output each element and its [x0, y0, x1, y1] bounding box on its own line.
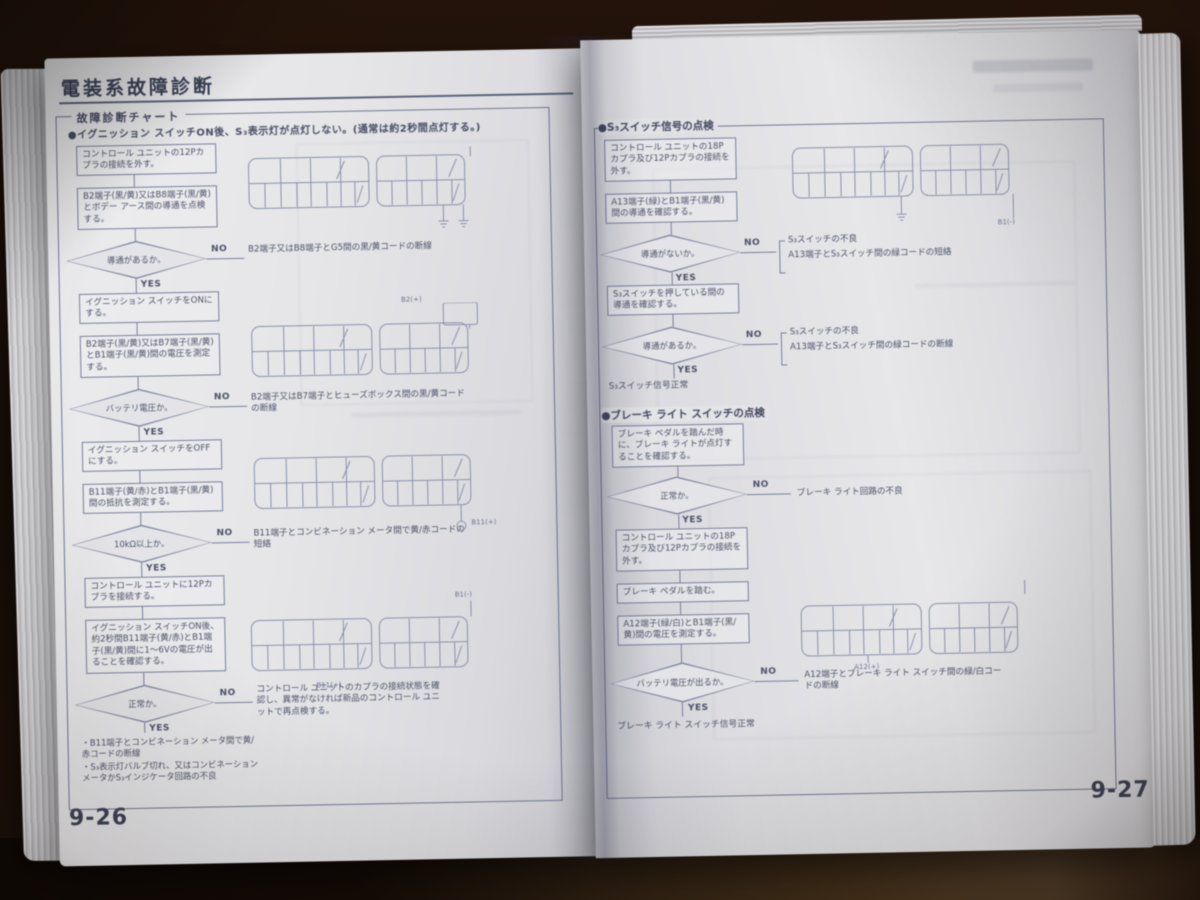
- connector-diagram: [247, 598, 486, 681]
- yes-label: YES: [141, 279, 162, 289]
- yes-label: YES: [149, 723, 170, 733]
- no-label: NO: [211, 244, 227, 254]
- section-title: ●S₃スイッチ信号の点検: [598, 118, 718, 135]
- no-label: NO: [753, 480, 769, 490]
- no-label: NO: [214, 392, 230, 402]
- result-note: ・B11端子とコンビネーション メータ間で黄/赤コードの断線: [81, 735, 261, 760]
- yes-label: YES: [146, 563, 167, 573]
- open-book: 電装系故障診断 故障診断チャート ●イグニッション スイッチON後、S₃表示灯が…: [0, 0, 1200, 900]
- flow-box: A13端子(緑)とB1端子(黒/黄)間の導通を確認する。: [605, 191, 738, 224]
- flow-box: イグニッション スイッチON後、約2秒間B11端子(黄/赤)とB1端子(黒/黄)…: [85, 617, 226, 674]
- no-label: NO: [744, 238, 760, 248]
- flow-box: B11端子(黄/赤)とB1端子(黒/黄)間の抵抗を測定する。: [83, 481, 224, 514]
- flow-box: コントロール ユニットの18Pカプラ及び12Pカプラの接続を外す。: [616, 527, 749, 572]
- no-label: NO: [760, 667, 776, 677]
- flow-box: ブレーキ ペダルを踏む。: [617, 581, 749, 604]
- no-label: NO: [216, 528, 232, 538]
- terminal-label: B11(+): [316, 681, 341, 689]
- left-page: 電装系故障診断 故障診断チャート ●イグニッション スイッチON後、S₃表示灯が…: [44, 48, 595, 866]
- yes-label: YES: [677, 365, 698, 375]
- no-branch-note: B2端子又はB7端子とヒューズボックス間の黒/黄コードの断線: [251, 389, 466, 416]
- bleedthrough-text: [973, 58, 1093, 72]
- flow-box: イグニッション スイッチをOFFにする。: [82, 439, 223, 472]
- page-number-right: 9-27: [1090, 778, 1150, 804]
- flow-box: コントロール ユニットに12Pカプラを接続する。: [84, 575, 225, 608]
- yes-label: YES: [688, 703, 709, 713]
- terminal-label: B11(+): [471, 518, 496, 526]
- photo-of-open-manual: 電装系故障診断 故障診断チャート ●イグニッション スイッチON後、S₃表示灯が…: [0, 0, 1200, 900]
- flow-box: B2端子(黒/黄)又はB7端子(黒/黄)とB1端子(黒/黄)間の電圧を測定する。: [80, 333, 221, 378]
- yes-label: YES: [682, 515, 703, 525]
- section-title: ●ブレーキ ライト スイッチの点検: [601, 405, 769, 423]
- flow-box: コントロール ユニットの12Pカプラの接続を外す。: [76, 143, 217, 176]
- flow-box: S₃スイッチを押している間の導通を確認する。: [607, 283, 740, 316]
- connector-diagram: [788, 130, 1028, 231]
- flow-box: イグニッション スイッチをONにする。: [79, 291, 220, 324]
- connector-diagram: [247, 302, 486, 385]
- connector-diagram: [250, 446, 490, 543]
- connector-diagram: [244, 146, 484, 243]
- flow-box: B2端子(黒/黄)又はB8端子(黒/黄)とボデー アース間の導通を点検する。: [77, 185, 218, 230]
- yes-label: YES: [143, 427, 164, 437]
- page-title: 電装系故障診断: [61, 71, 216, 101]
- connector-diagram: [797, 580, 1037, 677]
- flow-box: コントロール ユニットの18Pカプラ及び12Pカプラの接続を外す。: [604, 137, 737, 182]
- terminal-label: B2(+): [401, 295, 422, 303]
- flow-box: ブレーキ ペダルを踏んだ時に、ブレーキ ライトが点灯することを確認する。: [612, 423, 745, 468]
- terminal-label: A12(+): [854, 663, 879, 671]
- no-label: NO: [220, 688, 236, 698]
- right-page: ●S₃スイッチ信号の点検 コントロール ユニットの18Pカプラ及び12Pカプラの…: [580, 30, 1156, 859]
- flow-box: A12端子(緑/白)とB1端子(黒/黄)間の電圧を測定する。: [617, 613, 750, 646]
- yes-label: YES: [676, 273, 697, 283]
- terminal-label: B1(-): [998, 218, 1015, 226]
- no-label: NO: [746, 330, 762, 340]
- page-number-left: 9-26: [69, 805, 129, 831]
- result-note: ・S₃表示灯バルブ切れ、又はコンビネーション メータかS₃インジケータ回路の不良: [82, 759, 262, 784]
- terminal-label: B1(-): [455, 590, 472, 598]
- no-branch-note: コントロール ユニットのカプラの接続状態を確認し、異常がなければ新品のコントロー…: [256, 681, 447, 719]
